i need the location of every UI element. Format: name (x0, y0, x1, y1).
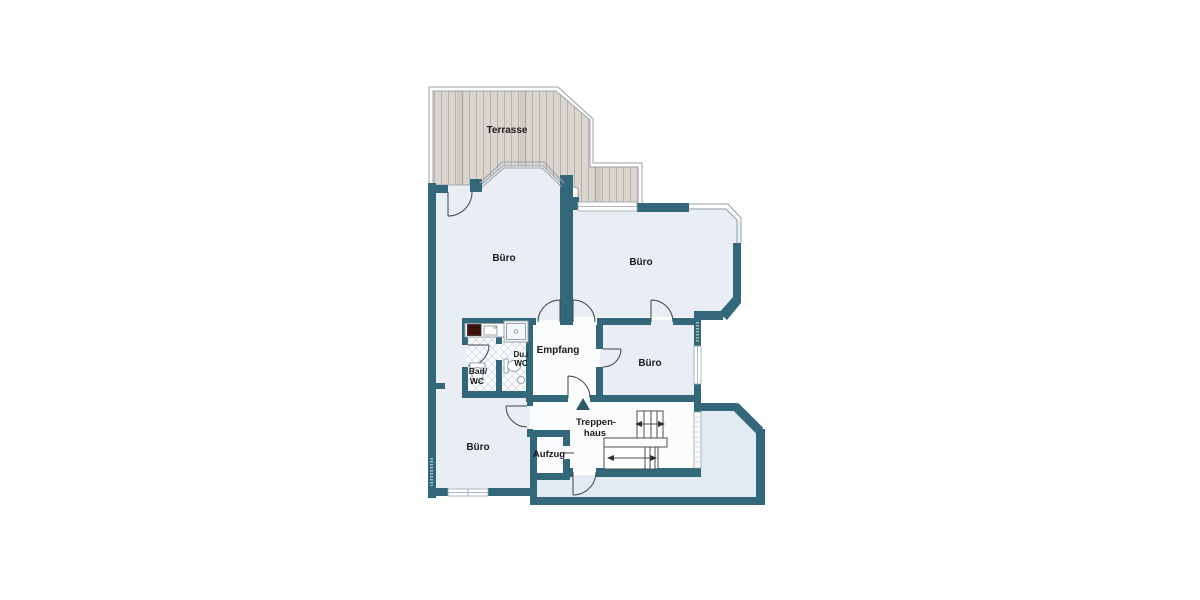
floor-buero-bottom-left (434, 390, 530, 492)
floorplan-page: Terrasse Büro Büro Büro Büro Empfang Bad… (0, 0, 1200, 600)
floor-empfang (530, 320, 600, 400)
floor-corridor-leg (434, 318, 466, 402)
floorplan-canvas: Terrasse Büro Büro Büro Büro Empfang Bad… (0, 0, 1200, 600)
label-buero-top-left: Büro (492, 253, 515, 264)
label-aufzug: Aufzug (533, 449, 565, 460)
stairs-landing (604, 438, 667, 447)
label-buero-top-right: Büro (629, 257, 652, 268)
label-empfang: Empfang (537, 345, 580, 356)
glass-block-strip (694, 412, 701, 468)
label-buero-bottom-left: Büro (466, 442, 489, 453)
label-treppenhaus-2: haus (584, 428, 606, 439)
label-bad-wc-2: WC (470, 376, 484, 386)
label-bad-wc-1: Bad/ (469, 366, 488, 376)
label-du-wc-2: WC (514, 359, 528, 368)
label-du-wc-1: Du./ (513, 350, 529, 359)
label-terrasse: Terrasse (487, 125, 528, 136)
label-buero-middle-right: Büro (638, 358, 661, 369)
basin-du-wc-icon (518, 377, 525, 384)
label-treppenhaus-1: Treppen- (576, 417, 616, 428)
floor-buero-top-left (436, 167, 562, 324)
